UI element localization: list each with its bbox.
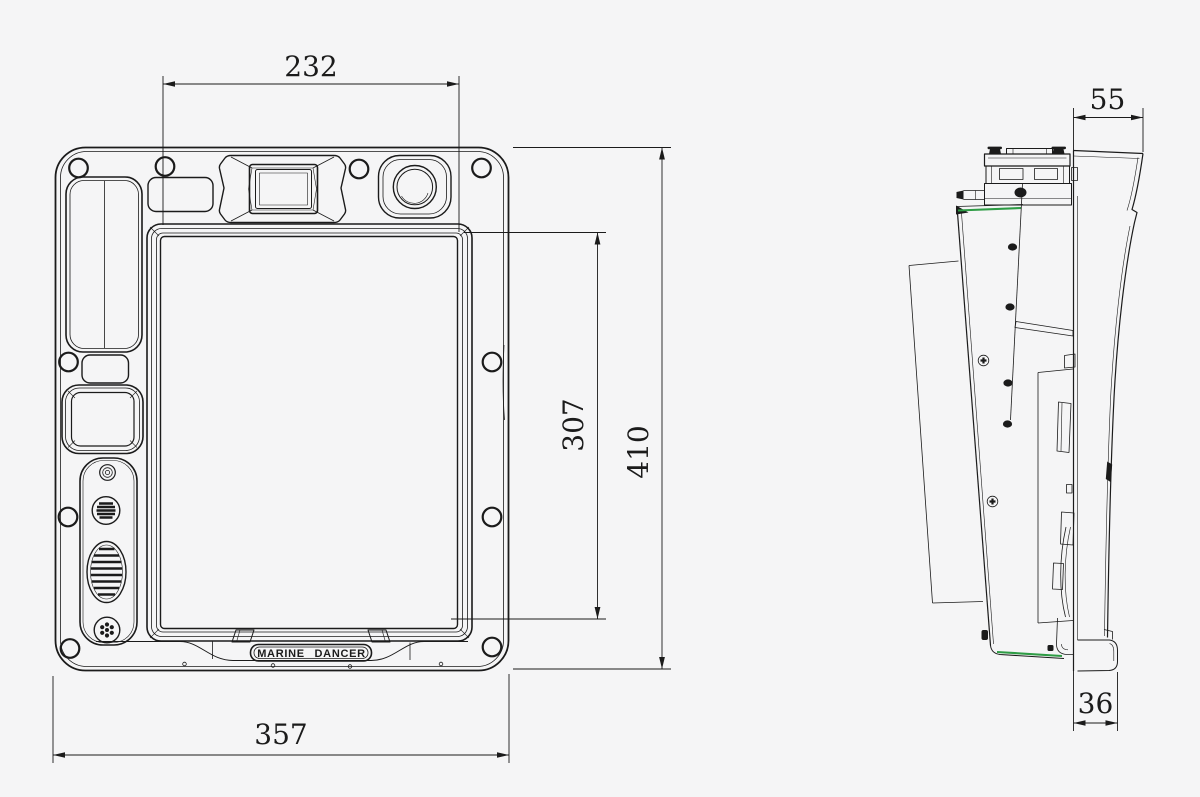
- side-view: [909, 147, 1143, 671]
- pcb-edge-top: [958, 208, 1022, 211]
- side-rear-plate: [909, 261, 983, 603]
- button-top-left[interactable]: [148, 178, 213, 212]
- button-small-left[interactable]: [82, 355, 129, 383]
- handle-slot: [66, 177, 142, 352]
- led-indicator: [100, 465, 116, 481]
- dimension-357: 357: [53, 674, 509, 763]
- brand-label-badge: MARINE DANCER: [251, 645, 372, 662]
- side-front-face: [1074, 151, 1144, 672]
- brand-label-text: MARINE DANCER: [257, 648, 366, 660]
- side-pin: [957, 191, 985, 200]
- button-square-left[interactable]: [62, 385, 143, 454]
- dimension-36: 36: [1074, 671, 1118, 731]
- dimension-410-text: 410: [622, 425, 655, 478]
- chassis-outline: [56, 148, 509, 671]
- dimension-232-text: 232: [284, 50, 337, 83]
- speaker-grille: [87, 542, 126, 603]
- dpad-control[interactable]: [219, 156, 345, 223]
- dimension-307: 307: [451, 233, 606, 620]
- dimension-55-text: 55: [1090, 83, 1126, 116]
- screen-bezel: [147, 224, 472, 641]
- front-view: MARINE DANCER: [56, 148, 509, 671]
- cross-screw-upper: [978, 355, 989, 366]
- dimension-357-text: 357: [254, 718, 307, 751]
- side-top-assembly: [957, 147, 1078, 205]
- side-screws: [978, 355, 998, 507]
- drawing-svg: MARINE DANCER 232 307 410: [0, 0, 1200, 797]
- dimensions-side: 55 36: [1074, 83, 1144, 731]
- microphone-grille: [92, 497, 120, 525]
- left-control-panel: [80, 458, 137, 645]
- flower-button[interactable]: [94, 617, 120, 643]
- side-rear-panel: [956, 205, 1064, 659]
- technical-drawing-canvas: MARINE DANCER 232 307 410: [0, 0, 1200, 797]
- dimension-307-text: 307: [557, 398, 590, 451]
- dimension-410: 410: [513, 148, 671, 670]
- cross-screw-lower: [987, 496, 998, 507]
- dimension-55: 55: [1074, 83, 1144, 152]
- side-display-module: [1038, 354, 1075, 655]
- dimension-36-text: 36: [1078, 687, 1114, 720]
- side-foot: [1078, 640, 1118, 671]
- rotary-knob[interactable]: [379, 156, 452, 219]
